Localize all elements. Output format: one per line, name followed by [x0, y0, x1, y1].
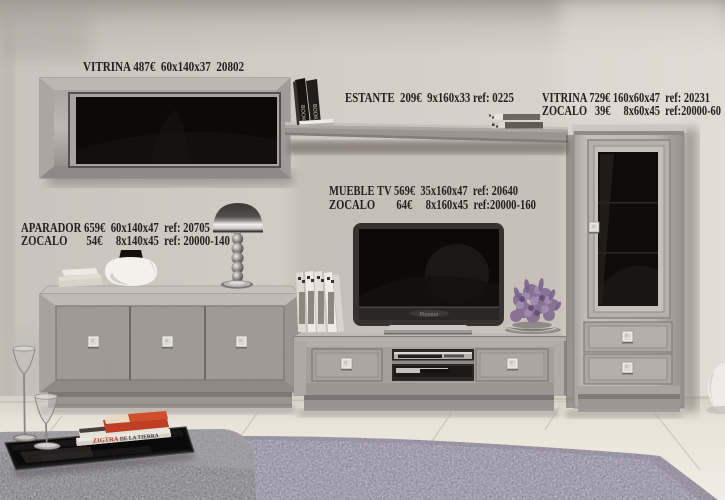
svg-text:Pioneer: Pioneer	[420, 312, 439, 318]
